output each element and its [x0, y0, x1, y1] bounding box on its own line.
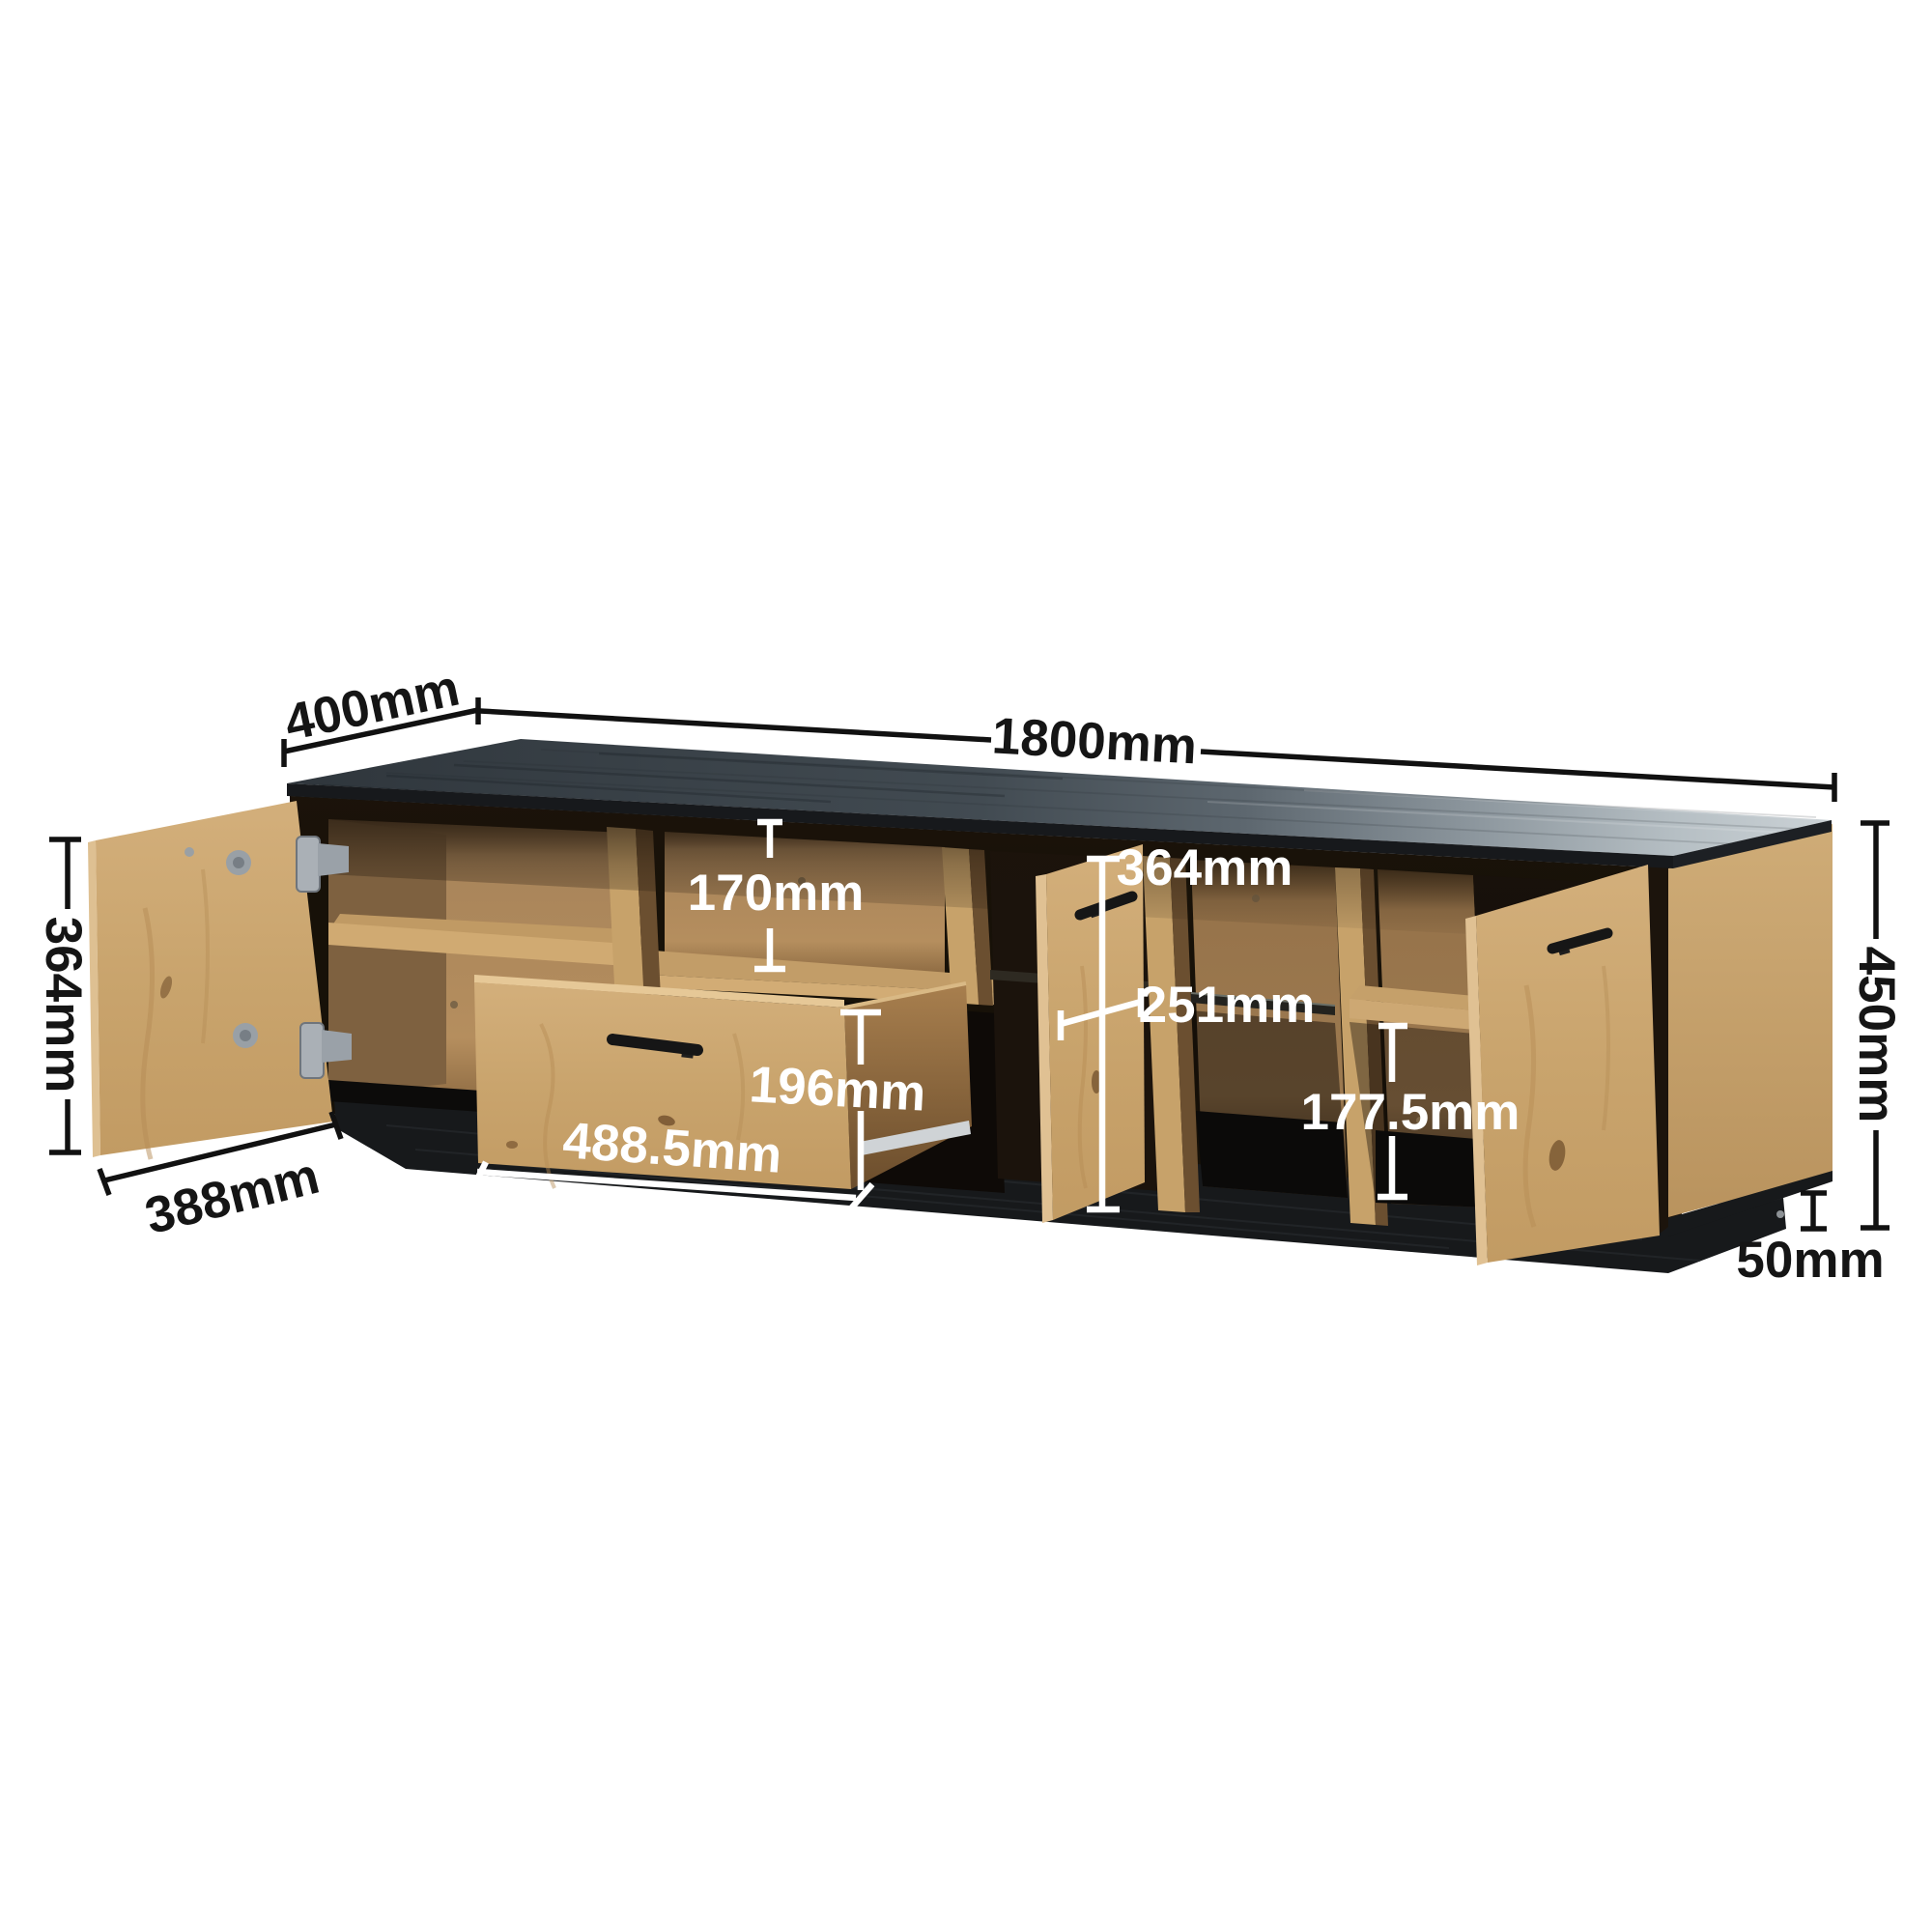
svg-text:364mm: 364mm — [1117, 839, 1293, 896]
svg-text:177.5mm: 177.5mm — [1301, 1084, 1520, 1141]
svg-text:50mm: 50mm — [1736, 1232, 1884, 1289]
svg-text:364mm: 364mm — [35, 917, 92, 1094]
svg-text:251mm: 251mm — [1139, 977, 1316, 1034]
svg-text:170mm: 170mm — [688, 865, 865, 922]
svg-text:1800mm: 1800mm — [990, 707, 1198, 775]
svg-text:450mm: 450mm — [1848, 947, 1905, 1123]
svg-text:196mm: 196mm — [748, 1056, 927, 1122]
